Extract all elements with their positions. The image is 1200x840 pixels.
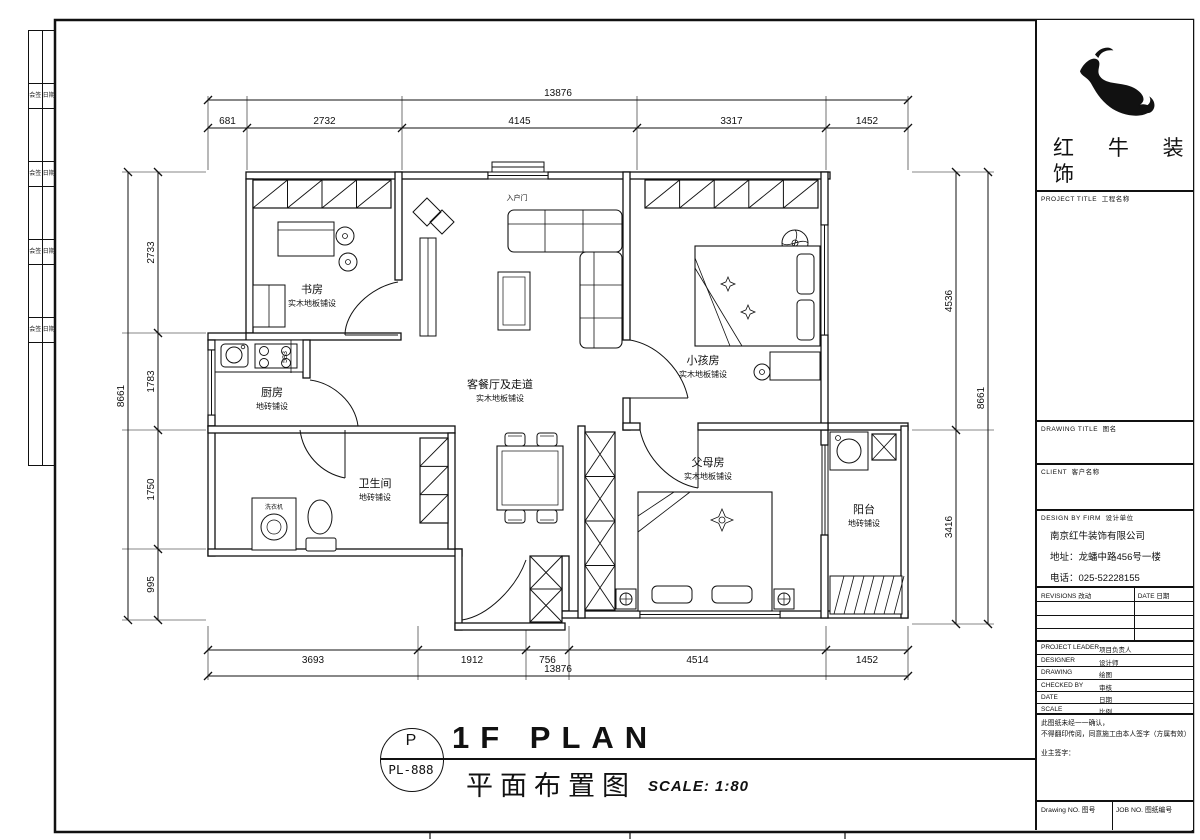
room-label: 阳台 — [853, 502, 875, 516]
dim-label: 4536 — [944, 289, 955, 312]
plan-scale: SCALE: 1:80 — [648, 778, 749, 795]
dim-label: 13876 — [544, 88, 572, 99]
dim-label: 995 — [146, 576, 157, 593]
room-finish-label: 地砖铺设 — [848, 518, 880, 528]
company-phone: 电话：025-52228155 — [1050, 570, 1140, 584]
bull-logo-icon — [1065, 38, 1165, 128]
binding-cell-label: 日期 — [43, 240, 56, 264]
project-title-field: PROJECT TITLE 工程名称 — [1037, 190, 1193, 420]
dim-label: 8661 — [976, 386, 987, 409]
info-rows: PROJECT LEADER 项目负责人 DESIGNER 设计师 DRAWIN… — [1037, 640, 1193, 713]
info-label-en: DATE — [1041, 694, 1058, 701]
plan-annotation: 洗衣机 — [265, 503, 283, 511]
drawing-tag-letter: P — [380, 732, 442, 750]
drawing-sheet: 1387668127324145331714523693191275645141… — [0, 0, 1200, 840]
room-label: 小孩房 — [687, 354, 720, 367]
title-underline — [381, 758, 1035, 760]
room-label: 卫生间 — [359, 476, 392, 490]
room-finish-label: 实木地板铺设 — [476, 393, 524, 403]
brand-text-line2: 饰 — [1053, 158, 1074, 188]
info-label-cn: 项目负责人 — [1099, 644, 1132, 654]
room-finish-label: 地砖铺设 — [256, 401, 288, 411]
room-label: 厨房 — [261, 386, 283, 399]
dim-label: 681 — [219, 116, 236, 127]
drawing-title-field: DRAWING TITLE 图名 — [1037, 420, 1193, 463]
dim-label: 13876 — [544, 664, 572, 675]
logo-section: 红 牛 装 饰 — [1037, 20, 1193, 190]
date-header: DATE 日期 — [1134, 588, 1193, 601]
info-label-en: SCALE — [1041, 706, 1062, 713]
dim-label: 8661 — [116, 384, 127, 407]
dim-label: 3317 — [720, 116, 743, 127]
note-line: 此图纸未经一一确认， — [1041, 719, 1189, 730]
dim-label: 3693 — [302, 655, 325, 666]
owner-signature-line: 业主签字： — [1041, 749, 1189, 760]
binding-cell-label: 日期 — [43, 162, 56, 186]
room-finish-label: 地砖铺设 — [359, 492, 391, 502]
binding-cell-label: 会签 — [29, 240, 43, 264]
binding-strip: 会签日期会签日期会签日期会签日期 — [28, 30, 56, 466]
info-label-en: DESIGNER — [1041, 657, 1075, 664]
binding-cell-label: 会签 — [29, 162, 43, 186]
binding-cell-label: 日期 — [43, 84, 56, 108]
footer-row: Drawing NO. 图号 JOB NO. 图纸编号 — [1037, 800, 1193, 830]
plan-title: 1F PLAN — [452, 720, 658, 756]
client-field: CLIENT 客户名称 — [1037, 463, 1193, 509]
design-firm-field: DESIGN BY FIRM 设计单位 南京红牛装饰有限公司 地址：龙蟠中路45… — [1037, 509, 1193, 586]
room-finish-label: 实木地板铺设 — [684, 471, 732, 481]
drawing-tag-code: PL-888 — [380, 762, 442, 777]
brand-text-line1: 红 牛 装 — [1053, 132, 1198, 162]
dim-label: 1750 — [146, 478, 157, 501]
dim-label: 4514 — [686, 655, 709, 666]
dim-label: 4145 — [508, 116, 531, 127]
revisions-table: REVISIONS 改动 DATE 日期 — [1037, 586, 1193, 640]
plan-annotation: 583 — [282, 351, 289, 363]
note-line: 不得翻印传阅，同意施工由本人签字（方属有效） — [1041, 730, 1189, 741]
room-label: 客餐厅及走道 — [467, 377, 533, 391]
dim-label: 2733 — [146, 241, 157, 264]
binding-cell-label: 会签 — [29, 318, 43, 342]
info-label-en: CHECKED BY — [1041, 682, 1083, 689]
floor-plan-canvas: 1387668127324145331714523693191275645141… — [0, 0, 1200, 840]
dim-label: 2732 — [313, 116, 336, 127]
client-label: CLIENT 客户名称 — [1041, 466, 1100, 476]
drawing-no-label: Drawing NO. 图号 — [1037, 802, 1112, 830]
dim-label: 1783 — [146, 370, 157, 393]
notes-section: 此图纸未经一一确认， 不得翻印传阅，同意施工由本人签字（方属有效） 业主签字： — [1037, 713, 1193, 800]
room-label: 书房 — [301, 283, 323, 296]
room-finish-label: 实木地板铺设 — [679, 369, 727, 379]
company-name: 南京红牛装饰有限公司 — [1050, 528, 1145, 542]
dim-label: 1452 — [856, 655, 879, 666]
binding-cell-label: 日期 — [43, 318, 56, 342]
company-address: 地址：龙蟠中路456号一楼 — [1050, 549, 1161, 563]
plan-annotation: 入户门 — [507, 193, 528, 202]
info-label-en: PROJECT LEADER — [1041, 644, 1099, 651]
binding-cell-label: 会签 — [29, 84, 43, 108]
plan-title-cn: 平面布置图 — [466, 764, 636, 803]
dim-label: 3416 — [944, 515, 955, 538]
info-label-en: DRAWING — [1041, 669, 1072, 676]
title-block: 红 牛 装 饰 PROJECT TITLE 工程名称 DRAWING TITLE… — [1035, 20, 1193, 830]
job-no-label: JOB NO. 图纸编号 — [1112, 802, 1193, 830]
revisions-header: REVISIONS 改动 — [1037, 588, 1134, 601]
dim-label: 1452 — [856, 116, 879, 127]
project-title-label: PROJECT TITLE 工程名称 — [1041, 193, 1130, 203]
design-firm-label: DESIGN BY FIRM 设计单位 — [1041, 512, 1134, 522]
room-finish-label: 实木地板铺设 — [288, 298, 336, 308]
dim-label: 1912 — [461, 655, 484, 666]
drawing-title-label: DRAWING TITLE 图名 — [1041, 423, 1117, 433]
room-label: 父母房 — [692, 456, 725, 469]
